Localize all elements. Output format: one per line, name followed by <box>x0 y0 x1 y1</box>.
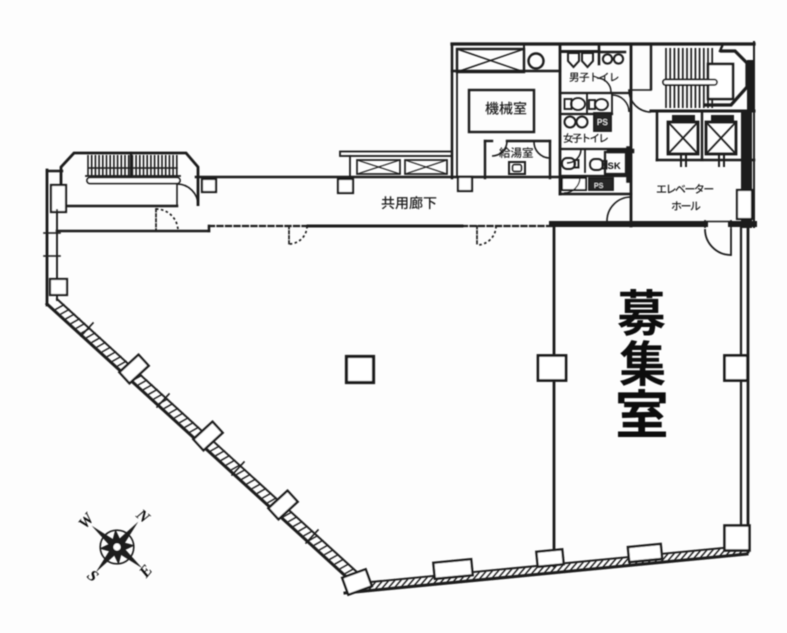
svg-text:PS: PS <box>594 183 604 190</box>
svg-text:PS: PS <box>597 118 608 127</box>
svg-text:SK: SK <box>608 161 621 172</box>
